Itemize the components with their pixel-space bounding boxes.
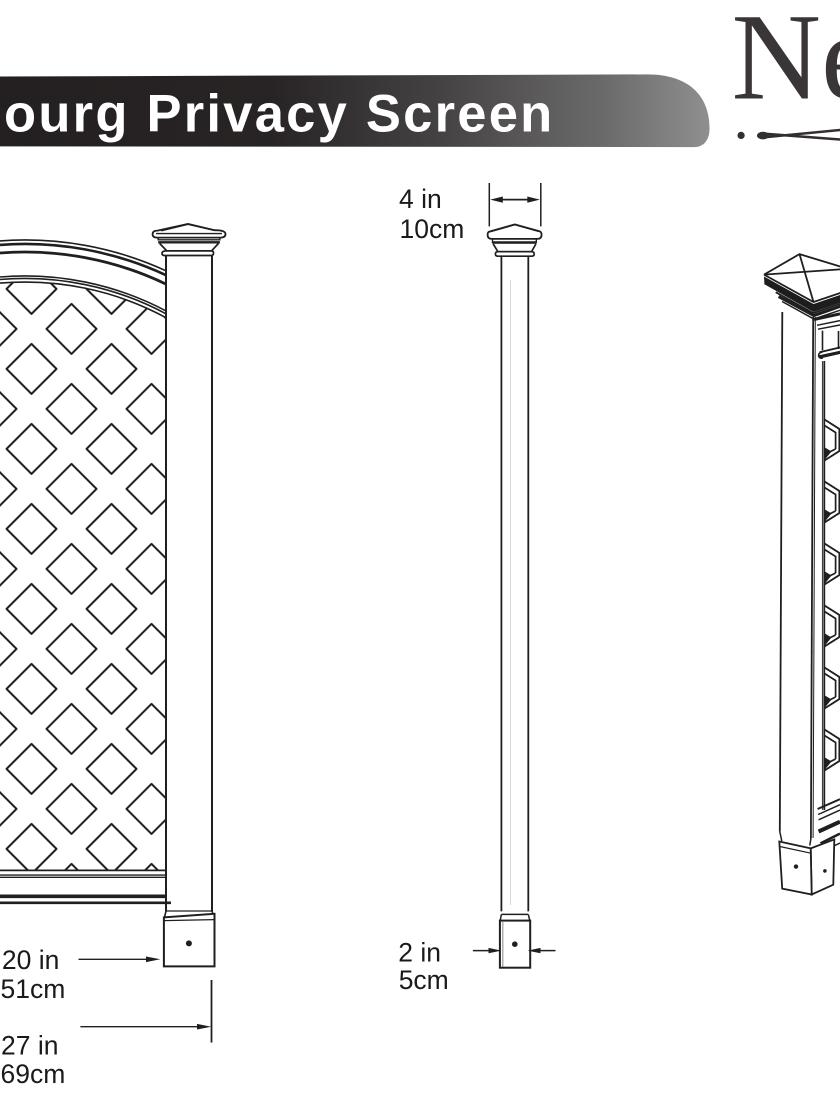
- svg-text:10cm: 10cm: [400, 214, 465, 244]
- svg-text:2 in: 2 in: [398, 937, 441, 967]
- svg-text:69cm: 69cm: [1, 1059, 66, 1089]
- svg-text:20 in: 20 in: [2, 945, 59, 975]
- svg-text:27 in: 27 in: [1, 1030, 58, 1060]
- svg-text:4 in: 4 in: [399, 184, 442, 214]
- svg-text:5cm: 5cm: [399, 965, 449, 995]
- svg-text:Ne: Ne: [732, 0, 840, 126]
- svg-text:ourg Privacy Screen: ourg Privacy Screen: [4, 84, 555, 143]
- svg-text:51cm: 51cm: [1, 974, 66, 1004]
